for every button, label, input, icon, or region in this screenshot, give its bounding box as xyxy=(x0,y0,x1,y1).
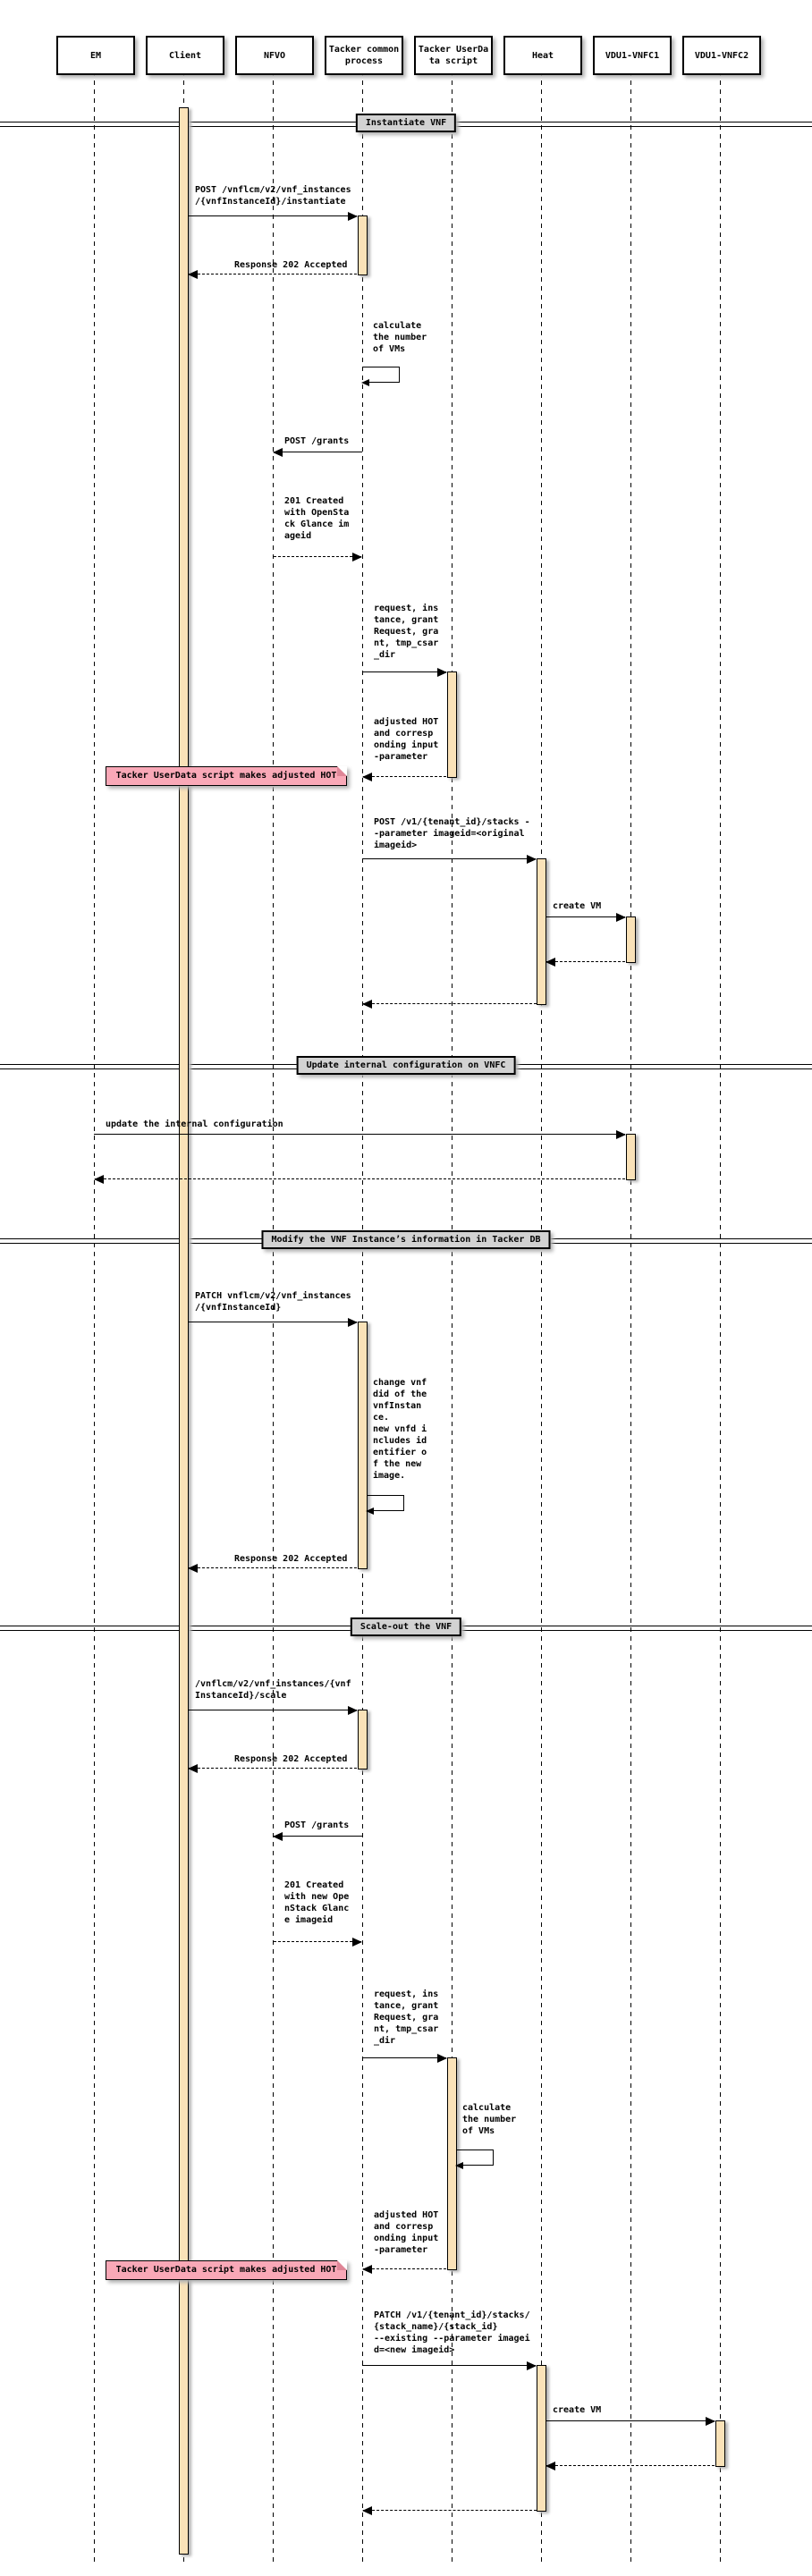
message-label-stacks-post: POST /v1/{tenant_id}/stacks - -parameter… xyxy=(374,816,530,851)
message-arrow-stacks-post-return xyxy=(363,1003,537,1004)
activation-tacker-common-1 xyxy=(358,215,368,275)
arrowhead-icon xyxy=(616,1130,626,1139)
arrowhead-icon xyxy=(352,1938,362,1947)
arrowhead-icon xyxy=(348,1706,358,1715)
note-adjusted-hot-1: Tacker UserData script makes adjusted HO… xyxy=(106,766,347,786)
message-arrow-update-config-return xyxy=(95,1178,625,1179)
message-arrow-stacks-patch xyxy=(362,2365,536,2366)
self-message-change-vnfdid xyxy=(368,1495,404,1511)
lifeline-heat xyxy=(541,72,542,2566)
activation-tacker-userdata-1 xyxy=(447,671,457,778)
message-arrow-grants-created-1 xyxy=(274,556,361,557)
message-arrow-create-vm-1 xyxy=(546,916,625,917)
lifeline-vdu1-vnfc1 xyxy=(630,72,631,2566)
message-label-update-config: update the internal configuration xyxy=(106,1119,283,1130)
activation-vdu1-vnfc1-1 xyxy=(626,916,636,963)
message-label-create-vm-1: create VM xyxy=(553,900,601,912)
activation-tacker-common-3 xyxy=(358,1710,368,1769)
message-arrow-grants-post-1 xyxy=(274,452,362,452)
arrowhead-icon xyxy=(348,212,358,221)
message-label-adjusted-hot-1: adjusted HOT and corresp onding input -p… xyxy=(374,716,438,763)
arrowhead-icon xyxy=(273,1832,283,1841)
participant-tacker-userdata-script: Tacker UserDa ta script xyxy=(414,36,493,75)
message-label-patch-vnf: PATCH vnflcm/v2/vnf_instances /{vnfInsta… xyxy=(195,1290,351,1313)
message-arrow-create-vm-2 xyxy=(546,2420,715,2421)
arrowhead-icon xyxy=(348,1318,358,1327)
message-arrow-instantiate-post xyxy=(189,215,357,216)
participant-em: EM xyxy=(56,36,135,75)
divider-label-update-internal-configuration: Update internal configuration on VNFC xyxy=(297,1056,516,1075)
lifeline-em xyxy=(94,72,95,2566)
message-arrow-update-config xyxy=(94,1134,625,1135)
arrowhead-icon xyxy=(546,2462,555,2470)
arrowhead-icon xyxy=(362,1000,372,1009)
message-arrow-userdata-args-2 xyxy=(362,2057,446,2058)
message-arrow-patch-vnf xyxy=(189,1322,357,1322)
arrowhead-icon xyxy=(362,2265,372,2274)
message-arrow-scale-post xyxy=(189,1710,357,1710)
activation-heat-1 xyxy=(537,858,546,1005)
message-label-stacks-patch: PATCH /v1/{tenant_id}/stacks/ {stack_nam… xyxy=(374,2310,530,2356)
message-arrow-stacks-patch-return xyxy=(363,2510,537,2511)
activation-client xyxy=(179,107,189,2555)
activation-tacker-common-2 xyxy=(358,1322,368,1569)
arrowhead-icon xyxy=(706,2417,715,2426)
self-message-calc-vms-2 xyxy=(457,2149,494,2166)
arrowhead-icon xyxy=(437,668,447,677)
message-label-patch-response: Response 202 Accepted xyxy=(234,1553,347,1565)
message-arrow-patch-response xyxy=(189,1567,357,1568)
message-label-userdata-args-2: request, ins tance, grant Request, gra n… xyxy=(374,1989,438,2047)
lifeline-tacker-common xyxy=(362,72,363,2566)
sequence-diagram: EM Client NFVO Tacker common process Tac… xyxy=(0,0,812,2576)
message-label-grants-created-2: 201 Created with new Ope nStack Glanc e … xyxy=(284,1879,349,1926)
arrowhead-icon xyxy=(352,553,362,562)
message-label-instantiate-post: POST /vnflcm/v2/vnf_instances /{vnfInsta… xyxy=(195,184,351,207)
lifeline-vdu1-vnfc2 xyxy=(720,72,721,2566)
divider-label-modify-vnf-instance-info: Modify the VNF Instance’s information in… xyxy=(261,1230,550,1249)
message-arrow-create-vm-2-return xyxy=(546,2465,715,2466)
arrowhead-icon xyxy=(273,448,283,457)
message-label-instantiate-response: Response 202 Accepted xyxy=(234,259,347,271)
participant-nfvo: NFVO xyxy=(235,36,314,75)
arrowhead-icon xyxy=(188,1764,198,1773)
message-label-change-vnfdid: change vnf did of the vnfInstan ce. new … xyxy=(373,1377,427,1482)
activation-heat-2 xyxy=(537,2365,546,2512)
message-arrow-grants-post-2 xyxy=(274,1836,362,1837)
arrowhead-icon xyxy=(361,379,369,386)
message-arrow-grants-created-2 xyxy=(274,1941,361,1942)
arrowhead-icon xyxy=(616,913,626,922)
arrowhead-icon xyxy=(362,2506,372,2515)
message-arrow-userdata-args-1 xyxy=(362,671,446,672)
participant-client: Client xyxy=(146,36,224,75)
arrowhead-icon xyxy=(362,773,372,781)
arrowhead-icon xyxy=(94,1175,104,1184)
arrowhead-icon xyxy=(527,855,537,864)
arrowhead-icon xyxy=(188,1564,198,1573)
message-arrow-instantiate-response xyxy=(189,274,357,274)
message-label-calc-vms-2: calculate the number of VMs xyxy=(462,2102,516,2137)
message-label-grants-post-1: POST /grants xyxy=(284,435,349,447)
lifeline-nfvo xyxy=(273,72,274,2566)
message-arrow-create-vm-1-return xyxy=(546,961,625,962)
arrowhead-icon xyxy=(188,270,198,279)
message-arrow-stacks-post xyxy=(362,858,536,859)
activation-vdu1-vnfc2-1 xyxy=(715,2420,725,2467)
message-label-scale-post: /vnflcm/v2/vnf_instances/{vnf InstanceId… xyxy=(195,1678,351,1702)
message-label-scale-response: Response 202 Accepted xyxy=(234,1753,347,1765)
message-arrow-adjusted-hot-2 xyxy=(363,2268,446,2269)
divider-label-scale-out-vnf: Scale-out the VNF xyxy=(351,1617,461,1636)
divider-label-instantiate-vnf: Instantiate VNF xyxy=(356,114,456,132)
message-label-adjusted-hot-2: adjusted HOT and corresp onding input -p… xyxy=(374,2209,438,2256)
message-arrow-scale-response xyxy=(189,1768,357,1769)
participant-vdu1-vnfc2: VDU1-VNFC2 xyxy=(682,36,761,75)
arrowhead-icon xyxy=(366,1508,374,1515)
arrowhead-icon xyxy=(455,2162,463,2169)
participant-tacker-common-process: Tacker common process xyxy=(325,36,403,75)
arrowhead-icon xyxy=(546,958,555,967)
message-arrow-adjusted-hot-1 xyxy=(363,776,446,777)
participant-vdu1-vnfc1: VDU1-VNFC1 xyxy=(593,36,672,75)
message-label-grants-created-1: 201 Created with OpenSta ck Glance im ag… xyxy=(284,495,349,542)
note-adjusted-hot-2: Tacker UserData script makes adjusted HO… xyxy=(106,2260,347,2280)
activation-vdu1-vnfc1-2 xyxy=(626,1134,636,1180)
arrowhead-icon xyxy=(527,2361,537,2370)
message-label-create-vm-2: create VM xyxy=(553,2404,601,2416)
message-label-userdata-args-1: request, ins tance, grant Request, gra n… xyxy=(374,603,438,661)
participant-heat: Heat xyxy=(503,36,582,75)
self-message-calc-vms-1 xyxy=(363,367,400,383)
message-label-calc-vms-1: calculate the number of VMs xyxy=(373,320,427,355)
message-label-grants-post-2: POST /grants xyxy=(284,1820,349,1831)
arrowhead-icon xyxy=(437,2054,447,2063)
